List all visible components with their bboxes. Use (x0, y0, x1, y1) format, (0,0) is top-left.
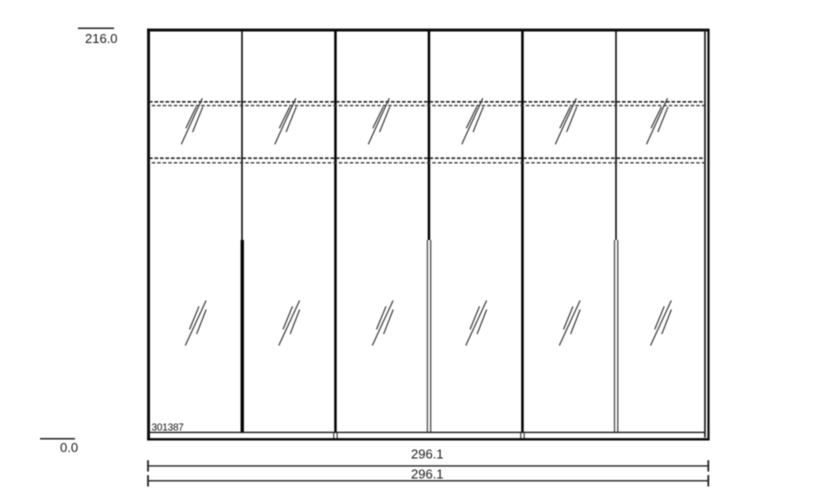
svg-text:296.1: 296.1 (411, 447, 444, 462)
svg-text:301387: 301387 (152, 423, 185, 434)
svg-text:296.1: 296.1 (411, 467, 444, 482)
svg-text:0.0: 0.0 (60, 440, 78, 455)
svg-text:216.0: 216.0 (85, 31, 118, 46)
